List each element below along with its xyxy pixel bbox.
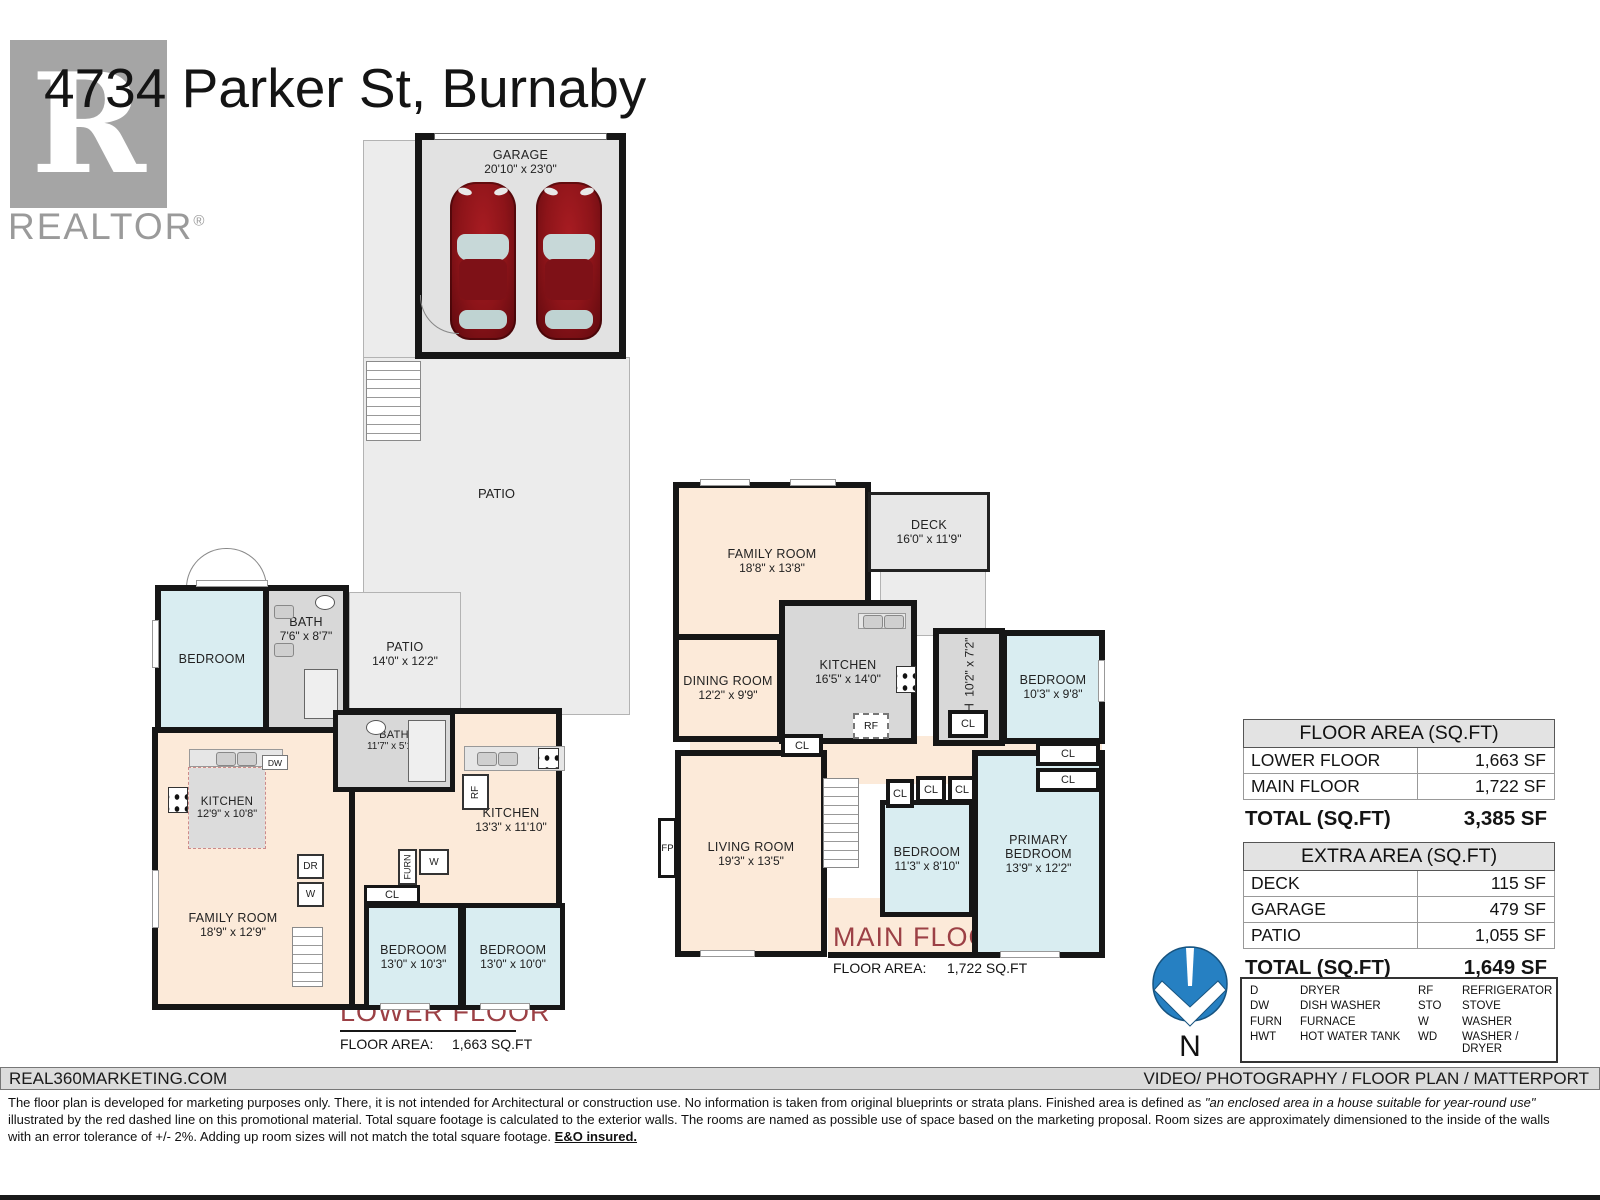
disclaimer-eo-insured: E&O insured. xyxy=(555,1129,637,1144)
garage-label: GARAGE 20'10" x 23'0" xyxy=(422,148,619,176)
window xyxy=(380,1003,430,1010)
page-bottom-edge xyxy=(0,1195,1600,1200)
page-title: 4734 Parker St, Burnaby xyxy=(44,56,646,120)
table-row: LOWER FLOOR 1,663 SF xyxy=(1243,748,1555,774)
window xyxy=(790,479,836,486)
car-headlight xyxy=(457,186,472,196)
closet: CL xyxy=(948,776,976,803)
legend-label: WASHER / DRYER xyxy=(1462,1031,1552,1055)
room-bedroom-ne: BEDROOM 10'3" x 9'8" xyxy=(1001,630,1105,744)
car-icon xyxy=(536,182,602,340)
shower xyxy=(408,720,446,782)
lower-west-wing: DW KITCHEN 12'9" x 10'8" FAMILY ROOM 18'… xyxy=(152,727,356,1010)
legend-label: WASHER xyxy=(1462,1016,1552,1028)
sink-icon xyxy=(274,643,294,657)
car-roof xyxy=(459,259,507,300)
dishwasher-label: DW xyxy=(262,755,288,770)
legend-abbr: RF xyxy=(1418,985,1462,997)
extra-area-table-header: EXTRA AREA (SQ.FT) xyxy=(1243,842,1555,871)
sink-icon xyxy=(498,752,518,766)
legend-abbr: WD xyxy=(1418,1031,1462,1055)
toilet-icon xyxy=(366,720,386,735)
legend-abbr: HWT xyxy=(1250,1031,1300,1055)
garage-door xyxy=(434,133,607,140)
disclaimer-italic: "an enclosed area in a house suitable fo… xyxy=(1205,1095,1536,1110)
disclaimer-text: The floor plan is developed for marketin… xyxy=(8,1095,1205,1110)
exterior-stairs xyxy=(366,361,421,441)
sink-icon xyxy=(216,752,236,766)
closet: CL xyxy=(364,885,420,904)
compass-north-label: N xyxy=(1148,1030,1232,1064)
footer-disclaimer: The floor plan is developed for marketin… xyxy=(8,1094,1553,1145)
stove-icon xyxy=(538,748,559,769)
closet: CL xyxy=(948,710,988,738)
legend-abbr: DW xyxy=(1250,1000,1300,1012)
closet: CL xyxy=(781,734,823,757)
window xyxy=(1000,951,1060,958)
lower-floor-underline xyxy=(340,1030,516,1032)
sink-icon xyxy=(237,752,257,766)
refrigerator-box: RF xyxy=(462,774,489,810)
closet: CL xyxy=(886,779,914,808)
closet: CL xyxy=(1036,742,1100,766)
room-dining: DINING ROOM 12'2" x 9'9" xyxy=(673,634,783,742)
washer-box: W xyxy=(297,882,324,907)
window xyxy=(152,870,159,928)
room-kitchen-east: KITCHEN 13'3" x 11'10" xyxy=(451,806,571,834)
table-total-row: TOTAL (SQ.FT) 1,649 SF xyxy=(1243,949,1555,980)
table-row: GARAGE 479 SF xyxy=(1243,897,1555,923)
legend-abbr: FURN xyxy=(1250,1016,1300,1028)
floor-area-table-header: FLOOR AREA (SQ.FT) xyxy=(1243,719,1555,748)
car-headlight xyxy=(493,186,508,196)
car-roof xyxy=(545,259,593,300)
refrigerator-box: RF xyxy=(853,713,889,739)
room-bedroom-sw: BEDROOM 13'0" x 10'3" xyxy=(364,903,463,1010)
room-deck: DECK 16'0" x 11'9" xyxy=(868,492,990,572)
washer-box: W xyxy=(419,849,449,875)
floor-plan-page: R REALTOR® 4734 Parker St, Burnaby PATIO… xyxy=(0,0,1600,1200)
legend-label: STOVE xyxy=(1462,1000,1552,1012)
table-row: MAIN FLOOR 1,722 SF xyxy=(1243,774,1555,800)
sink-icon xyxy=(477,752,497,766)
toilet-icon xyxy=(315,595,335,610)
legend-abbr: D xyxy=(1250,985,1300,997)
legend-label: HOT WATER TANK xyxy=(1300,1031,1418,1055)
car-windshield xyxy=(543,234,595,261)
compass-icon xyxy=(1148,944,1232,1035)
furnace-box: FURN xyxy=(398,849,417,885)
table-total-row: TOTAL (SQ.FT) 3,385 SF xyxy=(1243,800,1555,831)
stove-icon xyxy=(168,787,188,813)
closet: CL xyxy=(916,776,946,803)
sink-icon xyxy=(274,605,294,619)
window xyxy=(152,620,159,668)
car-headlight xyxy=(579,186,594,196)
car-rear-window xyxy=(459,310,507,329)
window xyxy=(700,479,750,486)
window xyxy=(1098,660,1105,702)
footer-bar: REAL360MARKETING.COM VIDEO/ PHOTOGRAPHY … xyxy=(0,1067,1600,1090)
lower-floor-area-label: FLOOR AREA: xyxy=(340,1036,433,1052)
legend-label: DISH WASHER xyxy=(1300,1000,1418,1012)
legend-label: DRYER xyxy=(1300,985,1418,997)
extra-area-table: EXTRA AREA (SQ.FT) DECK 115 SF GARAGE 47… xyxy=(1243,842,1555,980)
legend-abbr: STO xyxy=(1418,1000,1462,1012)
window xyxy=(196,580,268,587)
car-rear-window xyxy=(545,310,593,329)
legend-label: REFRIGERATOR xyxy=(1462,985,1552,997)
fireplace-box: FP xyxy=(658,818,677,878)
legend-label: FURNACE xyxy=(1300,1016,1418,1028)
patio-label: PATIO xyxy=(364,486,629,501)
room-bedroom-nw: BEDROOM xyxy=(155,585,269,733)
legend-box: DDRYER RFREFRIGERATOR DWDISH WASHER STOS… xyxy=(1240,977,1558,1063)
car-windshield xyxy=(457,234,509,261)
footer-services: VIDEO/ PHOTOGRAPHY / FLOOR PLAN / MATTER… xyxy=(1143,1069,1589,1089)
room-kitchen-west: KITCHEN 12'9" x 10'8" xyxy=(189,768,265,848)
garage-side-patio xyxy=(363,140,417,358)
room-bedroom-se: BEDROOM 13'0" x 10'0" xyxy=(461,903,565,1010)
sink-icon xyxy=(884,615,904,629)
floor-area-table: FLOOR AREA (SQ.FT) LOWER FLOOR 1,663 SF … xyxy=(1243,719,1555,831)
room-living: LIVING ROOM 19'3" x 13'5" xyxy=(675,750,827,957)
closet: CL xyxy=(1036,768,1100,792)
registered-mark: ® xyxy=(193,213,206,230)
main-floor-area-label: FLOOR AREA: xyxy=(833,960,926,976)
room-bath-mid: BATH 11'7" x 5'10" xyxy=(333,710,455,792)
room-family-lower: FAMILY ROOM 18'9" x 12'9" xyxy=(158,911,308,939)
main-floor-area-value: 1,722 SQ.FT xyxy=(947,960,1027,976)
table-row: PATIO 1,055 SF xyxy=(1243,923,1555,949)
stove-icon xyxy=(896,666,916,693)
lower-floor-area-value: 1,663 SQ.FT xyxy=(452,1036,532,1052)
window xyxy=(480,1003,530,1010)
dryer-box: DR xyxy=(297,854,324,879)
footer-website: REAL360MARKETING.COM xyxy=(9,1069,227,1089)
kitchen-island xyxy=(858,613,906,629)
room-patio-small: PATIO 14'0" x 12'2" xyxy=(349,592,461,716)
car-icon xyxy=(450,182,516,340)
disclaimer-text: illustrated by the red dashed line on th… xyxy=(8,1112,1550,1144)
main-stairs xyxy=(823,778,859,868)
lower-stairs xyxy=(292,927,323,987)
realtor-wordmark: REALTOR® xyxy=(8,206,206,248)
legend-abbr: W xyxy=(1418,1016,1462,1028)
car-headlight xyxy=(543,186,558,196)
room-bedroom-mid: BEDROOM 11'3" x 8'10" xyxy=(880,800,974,917)
sink-icon xyxy=(863,615,883,629)
window xyxy=(700,950,755,957)
table-row: DECK 115 SF xyxy=(1243,871,1555,897)
